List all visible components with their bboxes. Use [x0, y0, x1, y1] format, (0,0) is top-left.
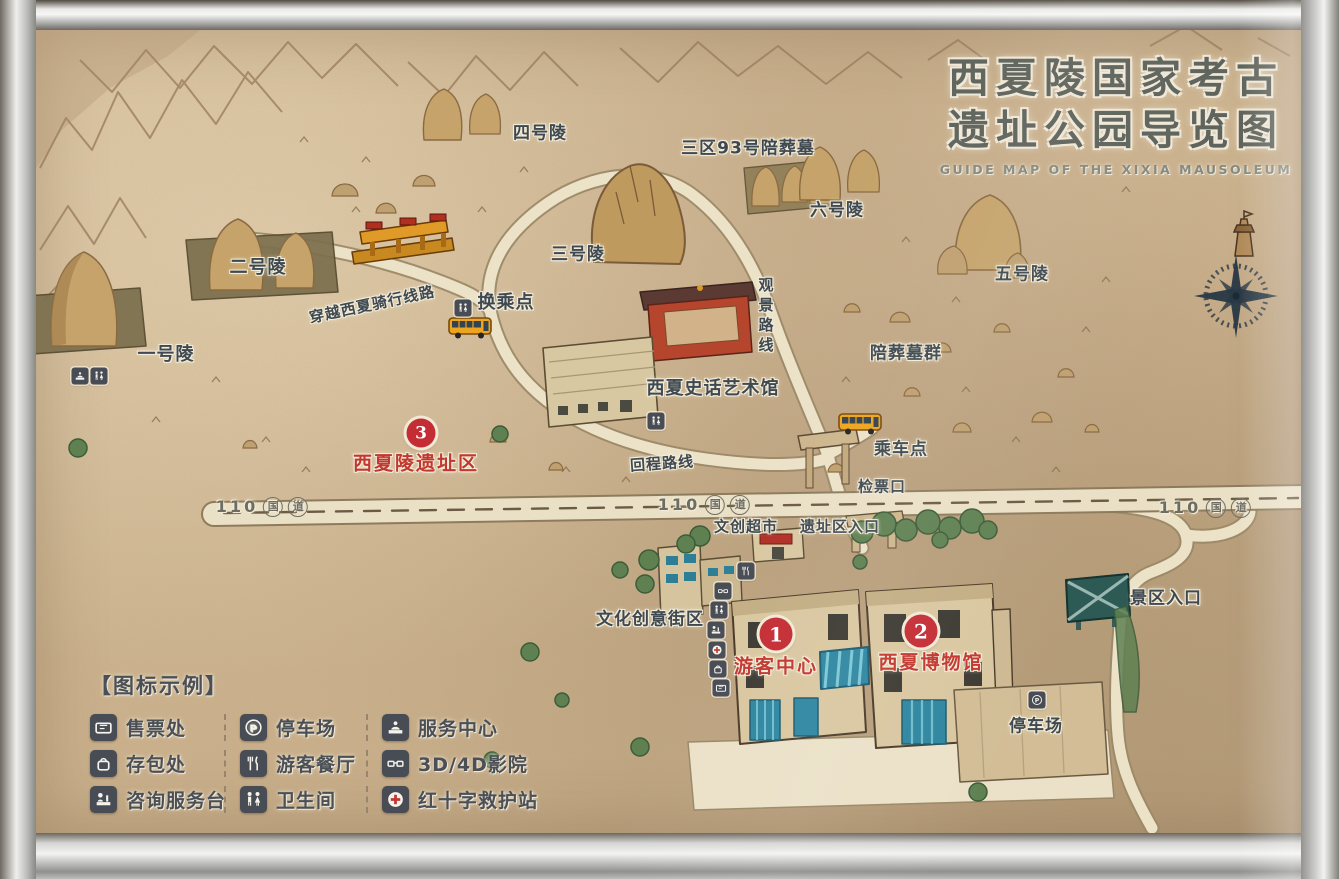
label-cultural-supermarket: 文创超市: [714, 516, 778, 537]
ticket-office-icon: [713, 680, 730, 697]
toilet-icon: [455, 300, 472, 317]
legend-title: 【图标示例】: [90, 670, 570, 700]
first-aid-icon: [382, 786, 409, 813]
toilet-icon: [240, 786, 267, 813]
label-site-entrance: 遗址区入口: [800, 516, 880, 537]
restaurant-icon: [240, 750, 267, 777]
label-transfer-point: 换乘点: [478, 288, 535, 314]
marker-1-label: 游客中心: [734, 652, 818, 679]
label-tomb-3: 三号陵: [551, 240, 605, 265]
label-viewing-route: 观景路线: [756, 277, 777, 357]
legend-item-restaurant: 游客餐厅: [224, 750, 380, 777]
title-english: GUIDE MAP OF THE XIXIA MAUSOLEUM: [921, 162, 1311, 177]
toilet-icon: [711, 602, 728, 619]
toilet-icon: [91, 368, 108, 385]
information-desk-icon: [708, 622, 725, 639]
marker-1-badge: 1: [760, 618, 793, 651]
information-desk-icon: [90, 786, 117, 813]
label-tomb-5: 五号陵: [995, 260, 1049, 285]
map-title: 西夏陵国家考古 遗址公园导览图 GUIDE MAP OF THE XIXIA M…: [921, 52, 1311, 177]
bag-storage-icon: [710, 661, 727, 678]
cinema-icon: [715, 583, 732, 600]
label-ticket-gate: 检票口: [858, 476, 906, 497]
legend-item-ticket-office: 售票处: [90, 714, 238, 741]
restaurant-icon: [738, 563, 755, 580]
legend-item-bag-storage: 存包处: [90, 750, 238, 777]
toilet-icon: [648, 413, 665, 430]
legend-item-toilet: 卫生间: [224, 786, 380, 813]
legend-item-parking: 停车场: [224, 714, 380, 741]
label-creative-street: 文化创意街区: [596, 605, 704, 630]
marker-3-badge: 3: [407, 419, 436, 448]
label-tomb-2: 二号陵: [230, 253, 287, 279]
marker-2-label: 西夏博物馆: [878, 648, 983, 675]
legend: 【图标示例】 售票处 停车场 服务中心 存包处 游客餐厅: [90, 670, 570, 813]
marker-3-label: 西夏陵遗址区: [353, 449, 479, 476]
label-tomb-6: 六号陵: [810, 196, 864, 221]
label-accompanying-tombs: 陪葬墓群: [870, 339, 942, 364]
label-art-hall: 西夏史话艺术馆: [647, 374, 780, 400]
bag-storage-icon: [90, 750, 117, 777]
label-scenic-entrance: 景区入口: [1130, 584, 1202, 609]
label-tomb-4: 四号陵: [513, 119, 567, 144]
road-label-110-center: 110国道: [658, 495, 750, 515]
ticket-office-icon: [90, 714, 117, 741]
label-boarding-point: 乘车点: [874, 435, 928, 460]
legend-item-information-desk: 咨询服务台: [90, 786, 238, 813]
title-line-2: 遗址公园导览图: [921, 104, 1311, 156]
parking-icon: [240, 714, 267, 741]
legend-item-first-aid: 红十字救护站: [366, 786, 570, 813]
label-parking-lot: 停车场: [1009, 712, 1063, 737]
first-aid-icon: [709, 642, 726, 659]
parking-icon: [1029, 692, 1046, 709]
marker-2-badge: 2: [905, 615, 938, 648]
label-tomb-1: 一号陵: [138, 340, 195, 366]
cinema-icon: [382, 750, 409, 777]
title-line-1: 西夏陵国家考古: [921, 52, 1311, 104]
road-label-110-right: 110国道: [1159, 498, 1251, 518]
label-tomb-group-93: 三区93号陪葬墓: [681, 134, 815, 159]
legend-item-cinema: 3D/4D影院: [366, 750, 570, 777]
service-center-icon: [72, 368, 89, 385]
legend-item-service-center: 服务中心: [366, 714, 570, 741]
label-return-route: 回程路线: [629, 450, 694, 475]
service-center-icon: [382, 714, 409, 741]
road-label-110-left: 110国道: [216, 497, 308, 517]
sign-photo: P: [0, 0, 1339, 879]
legend-grid: 售票处 停车场 服务中心 存包处 游客餐厅 3D/4D影院: [90, 714, 570, 813]
